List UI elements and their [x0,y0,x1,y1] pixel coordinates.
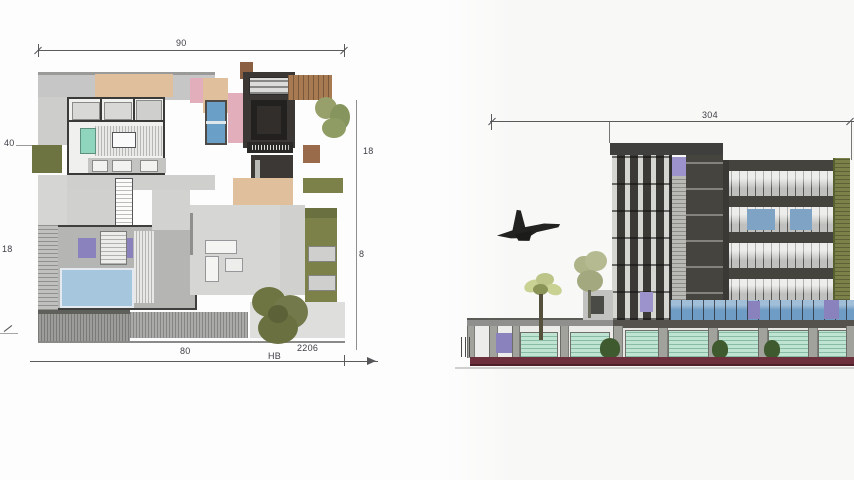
floor-window-band [723,279,848,300]
dimension-slash [4,325,12,332]
lavender-accent-panel [672,157,686,176]
side-garden-strip [32,145,62,173]
tower-roof-band [610,143,723,155]
side-passage-lower [38,175,67,225]
plan-bottom-wall [38,341,345,343]
grass-tufts [461,337,471,357]
floor-window-band [723,243,848,268]
blue-glass-cell [790,209,812,230]
tower-light-column [672,176,686,320]
plan-right-upper-label: 18 [363,147,374,156]
tower-dark-core [686,155,723,320]
plan-bottom-dimension-line [30,361,378,362]
purple-glass-cell [824,300,839,319]
annex-window [590,296,604,314]
floor-slab [723,196,848,207]
corridor-pink-floor [190,78,203,103]
architectural-drawing-sheet: 90 40 18 18 8 80 HB 2206 [0,0,854,480]
swimming-pool [60,268,134,308]
column [512,326,520,358]
wing-edge-column [723,160,729,300]
elevation-width-label: 304 [702,111,718,120]
side-passage [38,97,67,145]
hallway-floor [67,175,215,190]
plan-left-upper-label: 40 [4,139,15,148]
palm-trunk [539,294,543,340]
floor-window-band [723,207,848,232]
floor-slab [723,268,848,279]
ac-louver-unit [249,77,291,95]
appliance [92,160,108,172]
extension-line [609,122,610,143]
garage-door [38,310,130,343]
kitchen-island-teal [80,128,96,154]
driveway [130,312,248,338]
deck-plank-strip [133,231,155,303]
floor-window-band [723,171,848,196]
appliance [140,160,158,172]
storefront-glass [668,330,710,358]
hall-pink-floor [228,93,243,143]
lavender-accent-lower [640,292,653,312]
purple-entry-panel [496,333,512,353]
ground-beam [613,320,854,328]
blue-glass-cell [747,209,775,230]
purple-glass-cell [748,301,760,319]
column [658,328,668,358]
sofa [205,240,237,254]
floor-slab [723,160,848,171]
column [808,328,818,358]
column [560,326,569,358]
interior-wall [133,97,135,122]
column [846,326,854,358]
storefront-glass [625,330,660,358]
interior-wall [67,120,165,122]
shrub [764,340,780,358]
window-mullion [206,121,226,124]
plan-left-lower-label: 18 [2,245,13,254]
dimension-arrow [367,357,376,365]
vertical-garden-strip [833,158,850,300]
extension-line [851,122,852,160]
tree-canopy [585,251,607,271]
top-terrace-floor [95,74,173,97]
plan-note-code: 2206 [297,344,318,353]
outdoor-kitchen-unit [100,231,127,265]
plan-bottom-label: 80 [180,347,191,356]
closet [136,100,162,122]
coffee-table [225,258,243,272]
dining-table [112,132,136,148]
ground-base-maroon [470,357,854,366]
bed [72,102,100,120]
fighter-jet-silhouette [490,197,564,251]
tree-canopy [577,270,603,292]
plan-right-dimension-line [356,100,357,350]
bed [104,102,132,120]
plan-top-dimension-line [38,50,345,51]
dimension-tick [344,355,345,366]
tv-wall [190,213,193,255]
side-deck [280,205,305,295]
garden-planter [308,275,336,291]
shrub [712,340,728,358]
tree-trunk [588,290,591,318]
illegible-room-label [247,142,293,153]
staircase [115,178,133,228]
sofa [205,256,219,282]
shrub [600,338,620,358]
plan-note-hb: HB [268,352,281,361]
dimension-leader [0,333,18,334]
plan-width-label: 90 [176,39,187,48]
planter-wood-box [303,145,320,163]
garden-strip-edge [305,208,337,218]
stair-landing [67,190,115,225]
elevation-dimension-line [490,121,854,122]
garden-planter [308,246,336,262]
corridor-floor [152,190,190,230]
plant-canopy [322,118,346,138]
ground-shadow-line [455,367,854,369]
tan-threshold [238,195,282,205]
plan-right-lower-label: 8 [359,250,364,259]
louver-wall [38,225,58,310]
tree-canopy-shade [268,305,288,323]
shower-inner [257,106,281,134]
storefront-glass [818,330,848,358]
lounge-chair-purple [78,238,96,258]
interior-wall [100,97,102,122]
floor-slab [723,232,848,243]
planter-strip [303,178,343,193]
appliance [112,160,132,172]
